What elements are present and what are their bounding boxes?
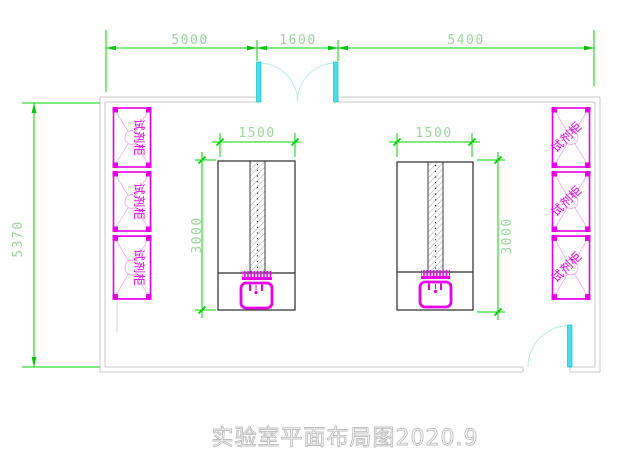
dim-value-top-middle: 1600 [279,33,316,48]
bench1-width-dimension: 1500 [212,126,301,157]
floorplan-canvas: 5000 1600 5400 5370 试剂柜 试剂柜 试剂柜 试剂柜 试剂柜 … [0,0,619,469]
room-walls [100,97,600,372]
bench1-depth-dimension: 3000 [190,152,216,318]
dim-value-room-depth: 5370 [11,220,26,257]
sink-grate [242,271,272,278]
dim-value-bench-depth: 3000 [190,216,205,253]
cabinet-label: 试剂柜 [132,249,147,287]
dim-value-top-left: 5000 [171,33,208,48]
sink-drain-drop [434,290,437,293]
single-door-bottom-right [528,325,572,367]
dim-value-bench-width: 1500 [415,126,452,141]
lab-bench-1: 1500 3000 [190,126,301,318]
sink-grate-bar [242,277,272,280]
dim-value-top-right: 5400 [447,33,484,48]
double-door-top [257,62,339,102]
door-swing-arc-left [259,63,298,102]
sink-grate-bar [421,276,450,279]
reagent-cabinets-left: 试剂柜 试剂柜 试剂柜 [113,107,152,300]
door-leaf-left [257,62,262,102]
door-swing-arc [528,326,570,368]
left-dimension: 5370 [11,103,100,367]
bench2-width-dimension: 1500 [389,126,480,157]
sink-grate [421,270,450,277]
lab-bench-2: 1500 3000 [389,126,515,320]
top-dimension-chain: 5000 1600 5400 [106,30,594,92]
cabinet-label: 试剂柜 [132,119,147,157]
dim-value-bench-depth: 3000 [500,217,515,254]
door-swing-arc-right [298,63,337,102]
wall-lines [100,97,600,372]
sink-drain-drop [254,291,257,294]
bench2-depth-dimension: 3000 [477,152,515,320]
dim-value-bench-width: 1500 [238,126,275,141]
cabinet-label: 试剂柜 [132,183,147,221]
reagent-cabinets-right: 试剂柜 试剂柜 试剂柜 [548,107,591,300]
door-leaf-right [334,62,339,102]
drawing-title: 实验室平面布局图2020.9 [212,426,479,451]
door-leaf [568,325,573,367]
